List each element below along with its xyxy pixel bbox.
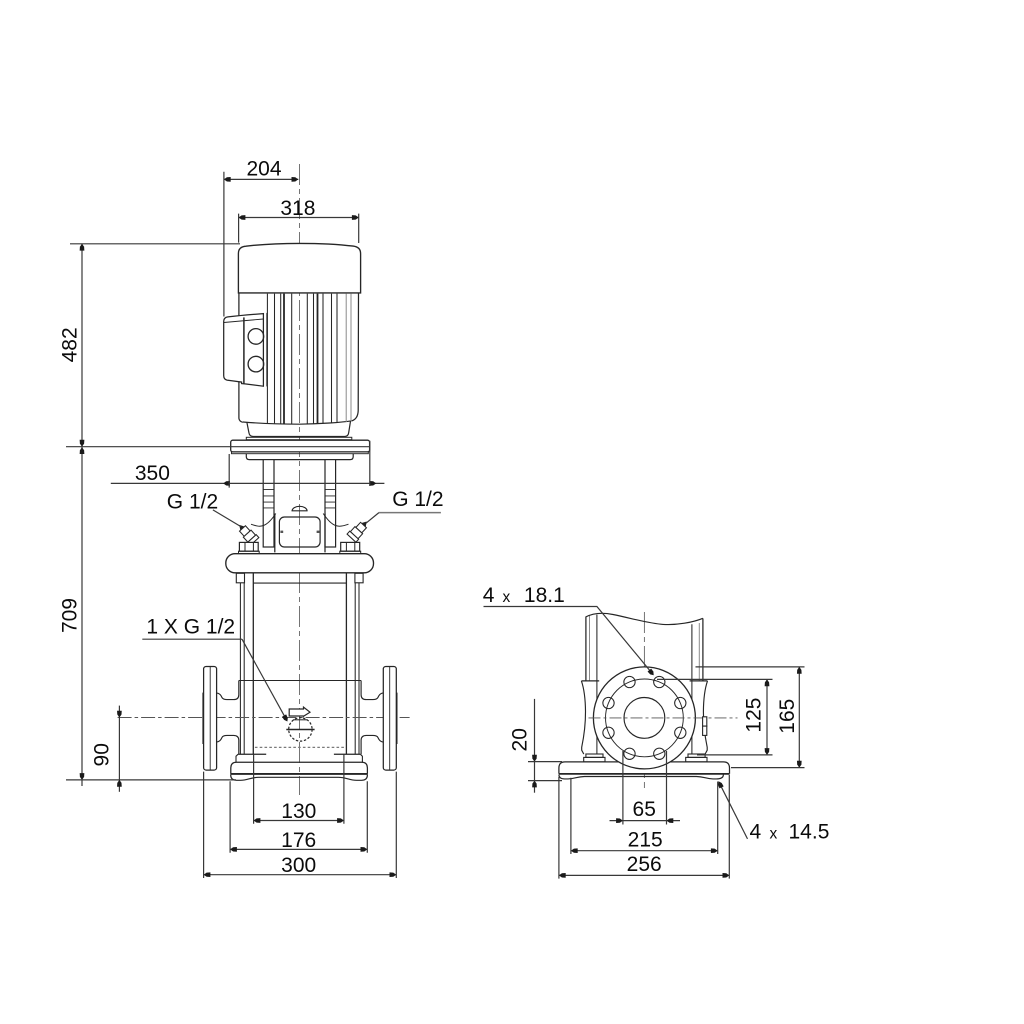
svg-text:x: x <box>770 826 778 843</box>
svg-text:256: 256 <box>627 853 662 876</box>
svg-text:709: 709 <box>59 598 82 633</box>
svg-text:482: 482 <box>59 327 82 362</box>
svg-text:318: 318 <box>280 197 315 220</box>
svg-text:204: 204 <box>246 157 281 180</box>
svg-text:350: 350 <box>135 462 170 485</box>
svg-text:4: 4 <box>483 584 495 607</box>
svg-text:300: 300 <box>281 854 316 877</box>
svg-text:125: 125 <box>742 698 765 733</box>
svg-text:18.1: 18.1 <box>524 584 565 607</box>
svg-text:4: 4 <box>750 821 762 844</box>
svg-text:176: 176 <box>281 829 316 852</box>
svg-text:165: 165 <box>776 699 799 734</box>
svg-text:130: 130 <box>281 800 316 823</box>
svg-text:14.5: 14.5 <box>789 821 830 844</box>
svg-text:G 1/2: G 1/2 <box>167 490 218 513</box>
svg-text:215: 215 <box>628 828 663 851</box>
svg-text:1 X G 1/2: 1 X G 1/2 <box>146 615 235 638</box>
svg-text:20: 20 <box>508 728 531 751</box>
svg-text:G 1/2: G 1/2 <box>392 488 443 511</box>
svg-text:90: 90 <box>90 743 113 766</box>
svg-text:x: x <box>503 589 511 606</box>
svg-text:65: 65 <box>633 798 656 821</box>
